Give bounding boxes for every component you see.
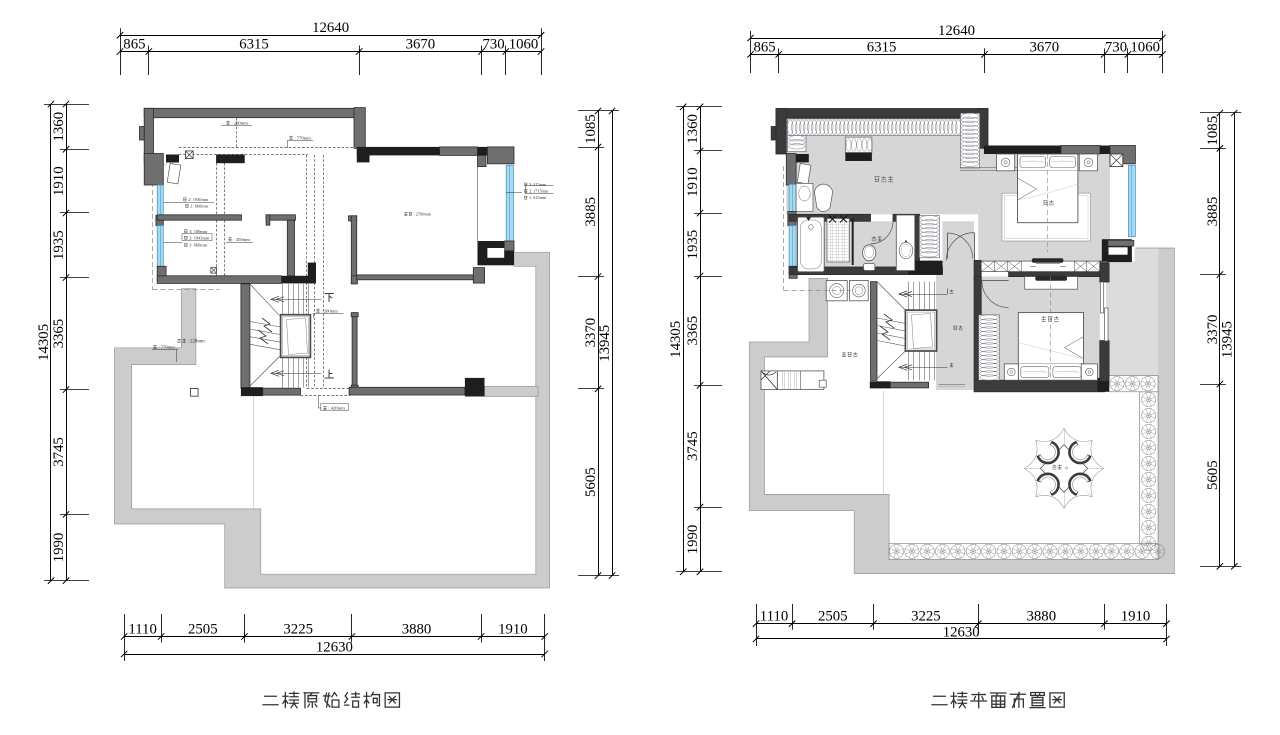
svg-text:6315: 6315 <box>239 37 269 53</box>
svg-text:730: 730 <box>482 37 504 53</box>
svg-text:12640: 12640 <box>312 20 349 36</box>
svg-text:3370: 3370 <box>1205 315 1221 345</box>
svg-text:1910: 1910 <box>685 167 701 197</box>
svg-text:1: 615mm: 1: 615mm <box>529 195 547 200</box>
svg-text:3365: 3365 <box>685 316 701 346</box>
svg-text:12630: 12630 <box>943 625 980 641</box>
svg-text:3745: 3745 <box>685 431 701 461</box>
svg-text:3885: 3885 <box>583 197 599 227</box>
svg-text:730: 730 <box>1105 39 1127 55</box>
svg-text:3: 180mm: 3: 180mm <box>189 229 208 234</box>
svg-text:1060: 1060 <box>509 37 539 53</box>
svg-text:2: 1943mm: 2: 1943mm <box>189 235 210 240</box>
svg-text:: 200mm: : 200mm <box>321 308 338 313</box>
svg-text:865: 865 <box>753 39 775 55</box>
svg-text:3745: 3745 <box>51 437 67 467</box>
svg-text:1: 660mm: 1: 660mm <box>190 204 209 209</box>
svg-text:1360: 1360 <box>685 114 701 144</box>
svg-text:1935: 1935 <box>51 230 67 260</box>
svg-text:3225: 3225 <box>283 622 313 638</box>
svg-text:14305: 14305 <box>668 321 684 358</box>
svg-text:3370: 3370 <box>583 318 599 348</box>
svg-text:1085: 1085 <box>1205 116 1221 146</box>
svg-text:5605: 5605 <box>583 467 599 497</box>
svg-text:1110: 1110 <box>128 622 157 638</box>
svg-text:3670: 3670 <box>406 37 436 53</box>
svg-text:3885: 3885 <box>1205 197 1221 227</box>
svg-text:13945: 13945 <box>1219 321 1235 358</box>
svg-text:2505: 2505 <box>188 622 218 638</box>
svg-text:: 450mm: : 450mm <box>233 237 250 242</box>
svg-text:1935: 1935 <box>685 230 701 260</box>
svg-text:: 2760mm: : 2760mm <box>414 212 432 217</box>
svg-text:2: 1930mm: 2: 1930mm <box>188 197 209 202</box>
svg-text:13945: 13945 <box>597 325 613 362</box>
svg-text:1360: 1360 <box>51 112 67 142</box>
svg-text:12630: 12630 <box>316 640 353 656</box>
svg-text:2: 1715mm: 2: 1715mm <box>529 189 549 194</box>
svg-text:14305: 14305 <box>36 324 52 361</box>
svg-text:: 220mm: : 220mm <box>188 340 205 345</box>
svg-text:: 770mm: : 770mm <box>158 345 175 350</box>
svg-text:12640: 12640 <box>938 23 975 39</box>
svg-text:3670: 3670 <box>1030 39 1060 55</box>
svg-text:6315: 6315 <box>867 39 897 55</box>
svg-text:3225: 3225 <box>911 609 941 625</box>
svg-text:1060: 1060 <box>1130 39 1160 55</box>
svg-text:: 420mm: : 420mm <box>328 406 345 411</box>
svg-text:1910: 1910 <box>1121 609 1151 625</box>
svg-text:1910: 1910 <box>51 166 67 196</box>
svg-text:3880: 3880 <box>1027 609 1057 625</box>
svg-text:1085: 1085 <box>583 114 599 144</box>
svg-text:: 770mm: : 770mm <box>294 135 311 140</box>
svg-text:1990: 1990 <box>51 533 67 563</box>
svg-text:3880: 3880 <box>402 622 432 638</box>
svg-text:3: 415mm: 3: 415mm <box>529 182 547 187</box>
svg-text:1910: 1910 <box>498 622 528 638</box>
svg-text:5605: 5605 <box>1205 460 1221 490</box>
svg-text:3365: 3365 <box>51 319 67 349</box>
svg-text:: 290mm: : 290mm <box>231 120 248 125</box>
svg-text:1990: 1990 <box>685 525 701 555</box>
svg-text:865: 865 <box>123 37 145 53</box>
svg-text:1: 660mm: 1: 660mm <box>189 243 208 248</box>
svg-text:2505: 2505 <box>818 609 848 625</box>
svg-text:1110: 1110 <box>760 609 789 625</box>
